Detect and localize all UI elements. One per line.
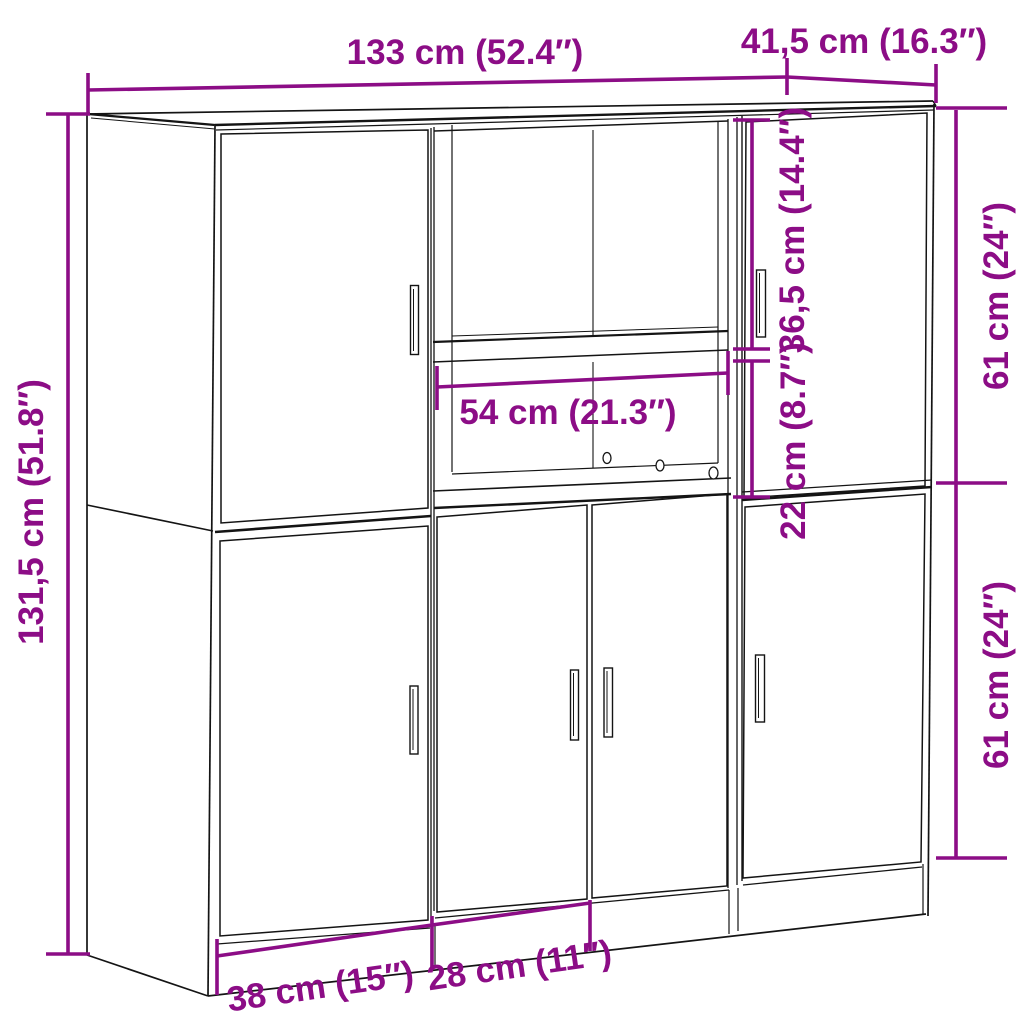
middle-cabinet-unit <box>433 121 731 918</box>
dim-depth-label: 41,5 cm (16.3″) <box>741 22 987 61</box>
dim-lower-61-label: 61 cm (24″) <box>977 581 1016 769</box>
niche-floor-front-edge <box>433 478 731 491</box>
niche-floor-back-edge <box>452 463 718 474</box>
vent-hole-3 <box>709 467 718 479</box>
dim-niche-width-label: 54 cm (21.3″) <box>459 393 676 432</box>
dim-niche-width-line <box>437 373 728 387</box>
dim-total-width-line <box>88 77 787 90</box>
cabinet-diagram-canvas: 133 cm (52.4″) 41,5 cm (16.3″) 131,5 cm … <box>0 0 1024 1024</box>
side-bottom-edge <box>87 955 208 996</box>
dim-niche-upper-label: 36,5 cm (14.4″) <box>773 107 812 353</box>
right-division-thin <box>742 480 932 492</box>
side-division-line <box>87 505 213 531</box>
dim-middle-door-width: 28 cm (11″) <box>424 900 614 998</box>
shelf-front-bottom-edge <box>433 350 728 362</box>
left-upper-door <box>221 130 428 523</box>
dim-total-width-label: 133 cm (52.4″) <box>347 33 584 72</box>
dim-total-height-label: 131,5 cm (51.8″) <box>12 379 51 645</box>
vent-hole-1 <box>603 453 611 464</box>
dim-left-door-width: 38 cm (15″) <box>217 916 432 1019</box>
left-upper-door-handle <box>411 286 419 355</box>
middle-right-door-handle <box>604 668 613 737</box>
right-upper-door <box>744 113 927 498</box>
dim-28-label: 28 cm (11″) <box>424 933 614 998</box>
dim-upper-61-label: 61 cm (24″) <box>977 202 1016 390</box>
right-lower-door-handle <box>756 655 765 722</box>
shelf-back-edge <box>452 327 718 336</box>
dim-38-line <box>217 925 432 956</box>
right-division-line <box>742 487 932 500</box>
top-front-edge-inner <box>216 110 934 130</box>
left-cabinet-unit <box>215 130 431 944</box>
vent-hole-2 <box>656 460 664 471</box>
right-lower-door <box>743 494 925 878</box>
dim-38-label: 38 cm (15″) <box>225 954 417 1020</box>
top-front-edge <box>215 106 936 125</box>
dim-lower-section-height: 61 cm (24″) <box>936 483 1016 858</box>
shelf-front-top-edge <box>433 331 728 342</box>
dim-upper-section-height: 61 cm (24″) <box>936 108 1016 483</box>
right-corner-edge <box>928 104 934 916</box>
dim-total-width: 133 cm (52.4″) <box>88 33 787 113</box>
dim-niche-width: 54 cm (21.3″) <box>437 351 728 432</box>
right-cabinet-unit <box>742 104 934 916</box>
dim-total-height: 131,5 cm (51.8″) <box>12 114 90 954</box>
dim-depth: 41,5 cm (16.3″) <box>741 22 987 103</box>
right-upper-door-handle <box>757 270 766 337</box>
left-lower-door-handle <box>410 686 418 754</box>
dim-depth-line <box>787 77 936 85</box>
middle-left-door-handle <box>571 670 579 740</box>
left-lower-door <box>220 526 428 936</box>
middle-left-door <box>437 505 587 912</box>
front-left-corner-edge <box>208 126 215 996</box>
left-division-line <box>215 516 431 532</box>
dimension-diagram: 133 cm (52.4″) 41,5 cm (16.3″) 131,5 cm … <box>0 0 1024 1024</box>
dim-niche-lower-label: 22 cm (8.7″) <box>774 342 813 540</box>
left-side-panel <box>87 114 215 996</box>
